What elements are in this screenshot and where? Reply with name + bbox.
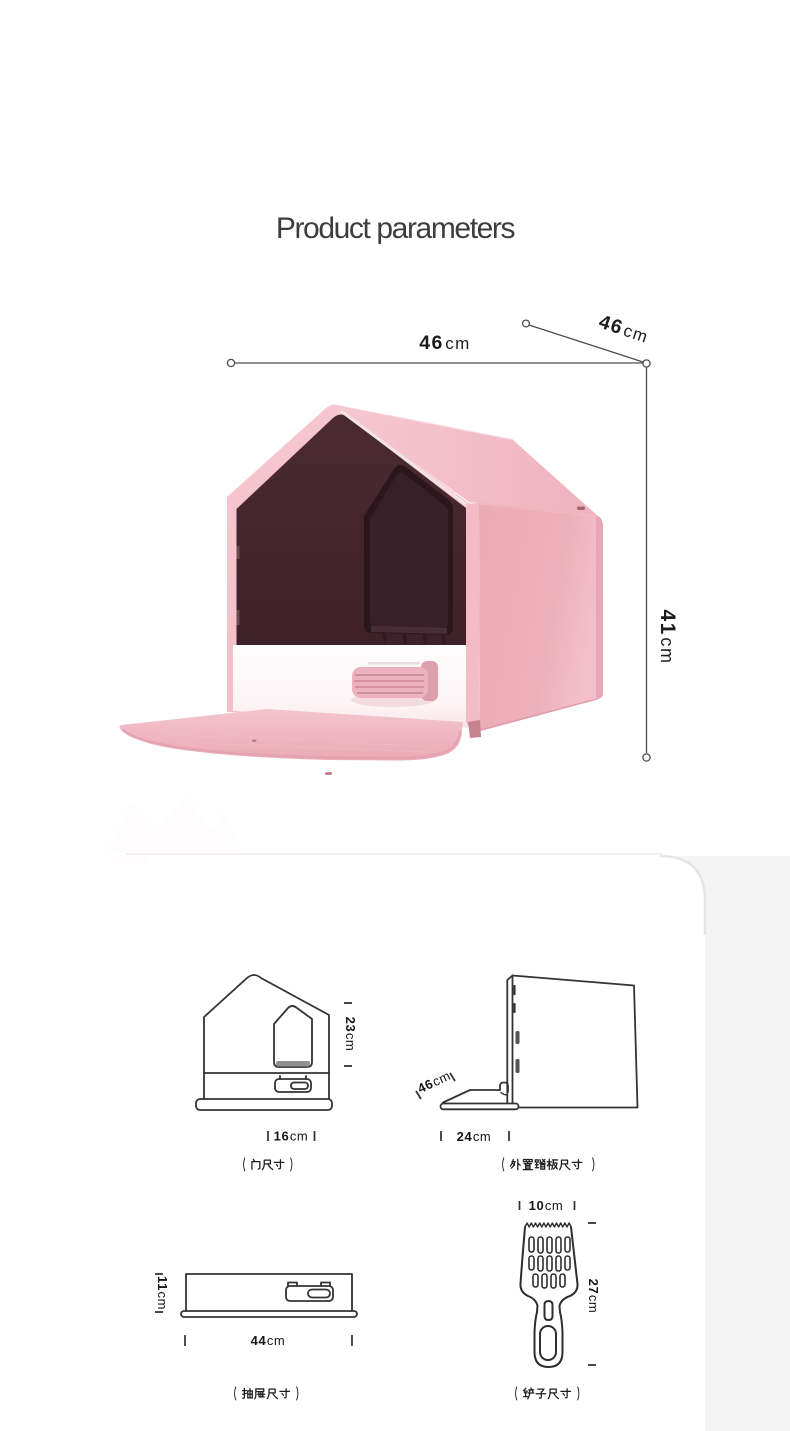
svg-text:41cm: 41cm: [656, 609, 679, 664]
svg-text:46cm: 46cm: [419, 332, 470, 354]
svg-text:Product parameters: Product parameters: [276, 212, 515, 245]
svg-text:10cm: 10cm: [529, 1198, 564, 1213]
svg-text:27cm: 27cm: [586, 1279, 601, 1314]
svg-text:11cm: 11cm: [155, 1276, 170, 1310]
svg-text:23cm: 23cm: [343, 1017, 358, 1052]
svg-text:44cm: 44cm: [251, 1333, 286, 1348]
svg-text:24cm: 24cm: [457, 1129, 492, 1144]
svg-text:16cm: 16cm: [274, 1129, 309, 1144]
